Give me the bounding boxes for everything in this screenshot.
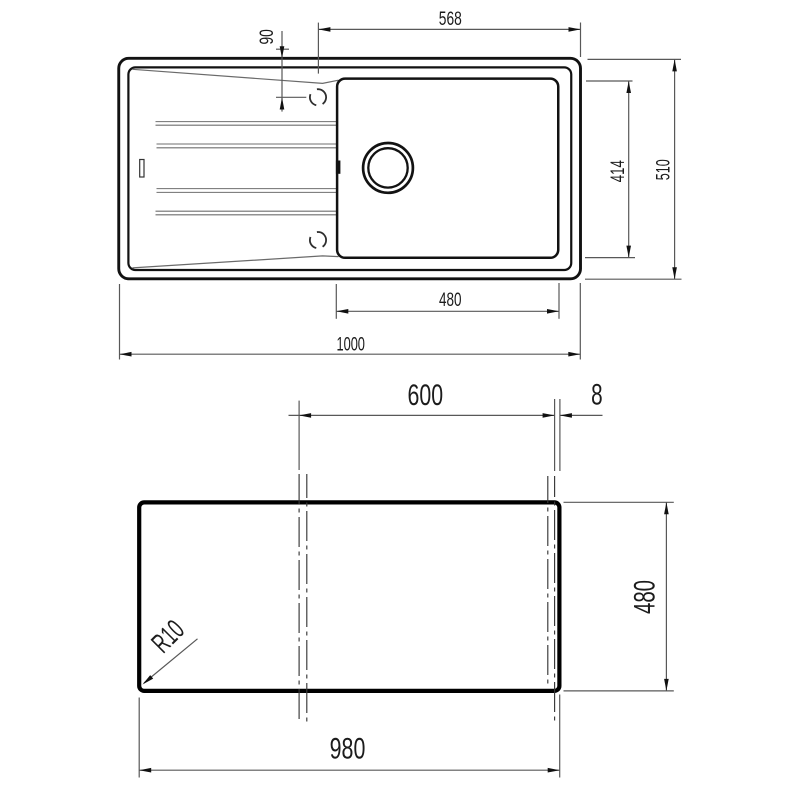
svg-text:480: 480 [629,580,662,614]
svg-text:568: 568 [439,8,462,30]
svg-text:1000: 1000 [336,334,365,356]
svg-text:480: 480 [439,289,462,311]
svg-text:8: 8 [591,379,603,412]
svg-text:600: 600 [408,379,444,412]
svg-text:414: 414 [607,160,629,182]
svg-text:510: 510 [653,159,675,180]
svg-text:90: 90 [256,29,278,44]
svg-text:980: 980 [330,733,366,766]
